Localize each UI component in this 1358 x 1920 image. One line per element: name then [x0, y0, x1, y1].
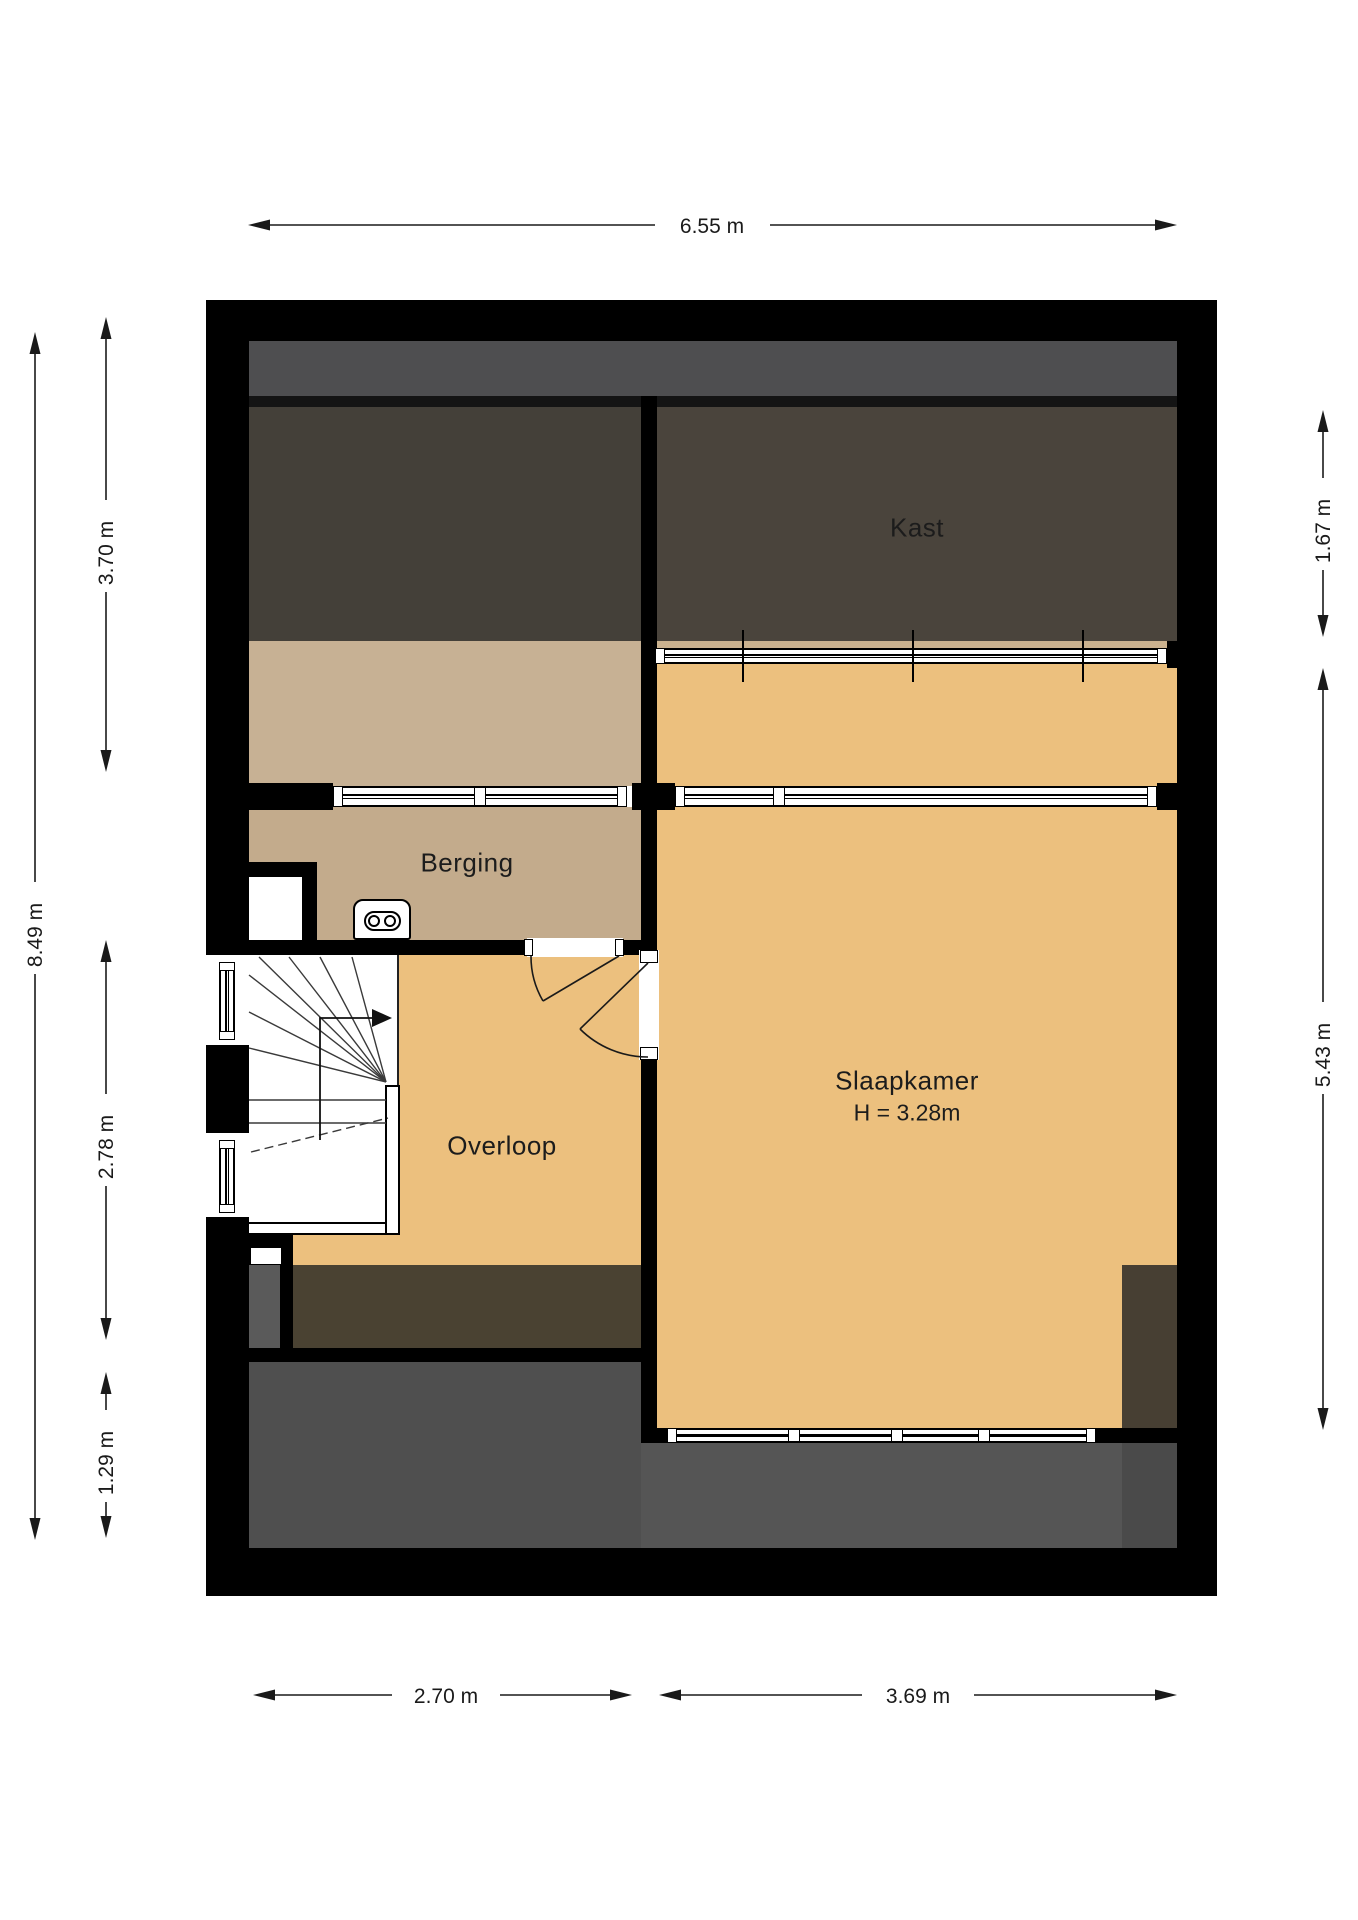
- dim-left-top: 3.70 m: [95, 317, 118, 772]
- label-slaapkamer: Slaapkamer: [835, 1066, 979, 1097]
- door-berging-swing: [531, 956, 619, 1001]
- plan-vector-overlay: 6.55 m 8.49 m 3.70 m 2.78 m: [0, 0, 1358, 1920]
- dim-left-total-label: 8.49 m: [24, 903, 47, 967]
- dim-left-mid-label: 2.78 m: [95, 1115, 118, 1179]
- dim-bottom-left-label: 2.70 m: [414, 1685, 478, 1708]
- dim-left-bot-label: 1.29 m: [95, 1431, 118, 1495]
- stairs-treads: [249, 957, 388, 1152]
- label-kast: Kast: [890, 513, 944, 544]
- floor-plan-page: 6.55 m 8.49 m 3.70 m 2.78 m: [0, 0, 1358, 1920]
- label-berging: Berging: [420, 848, 513, 879]
- dim-right-top-label: 1.67 m: [1312, 499, 1335, 563]
- stairs-direction-arrow-icon: [372, 1009, 392, 1027]
- door-slaapkamer-swing: [580, 963, 648, 1057]
- dim-right-bot-label: 5.43 m: [1312, 1023, 1335, 1087]
- dim-bottom-left: 2.70 m: [253, 1685, 632, 1708]
- dim-right-top: 1.67 m: [1312, 410, 1335, 637]
- dim-left-top-label: 3.70 m: [95, 521, 118, 585]
- label-slaapkamer-height: H = 3.28m: [854, 1100, 961, 1127]
- dim-top-width-label: 6.55 m: [680, 215, 744, 238]
- label-overloop: Overloop: [447, 1131, 557, 1162]
- dim-right-bot: 5.43 m: [1312, 668, 1335, 1430]
- dim-top-width: 6.55 m: [248, 215, 1177, 238]
- dim-left-bot: 1.29 m: [95, 1372, 118, 1538]
- dim-left-total: 8.49 m: [24, 332, 47, 1540]
- dim-bottom-right: 3.69 m: [659, 1685, 1177, 1708]
- dim-left-mid: 2.78 m: [95, 940, 118, 1340]
- dim-bottom-right-label: 3.69 m: [886, 1685, 950, 1708]
